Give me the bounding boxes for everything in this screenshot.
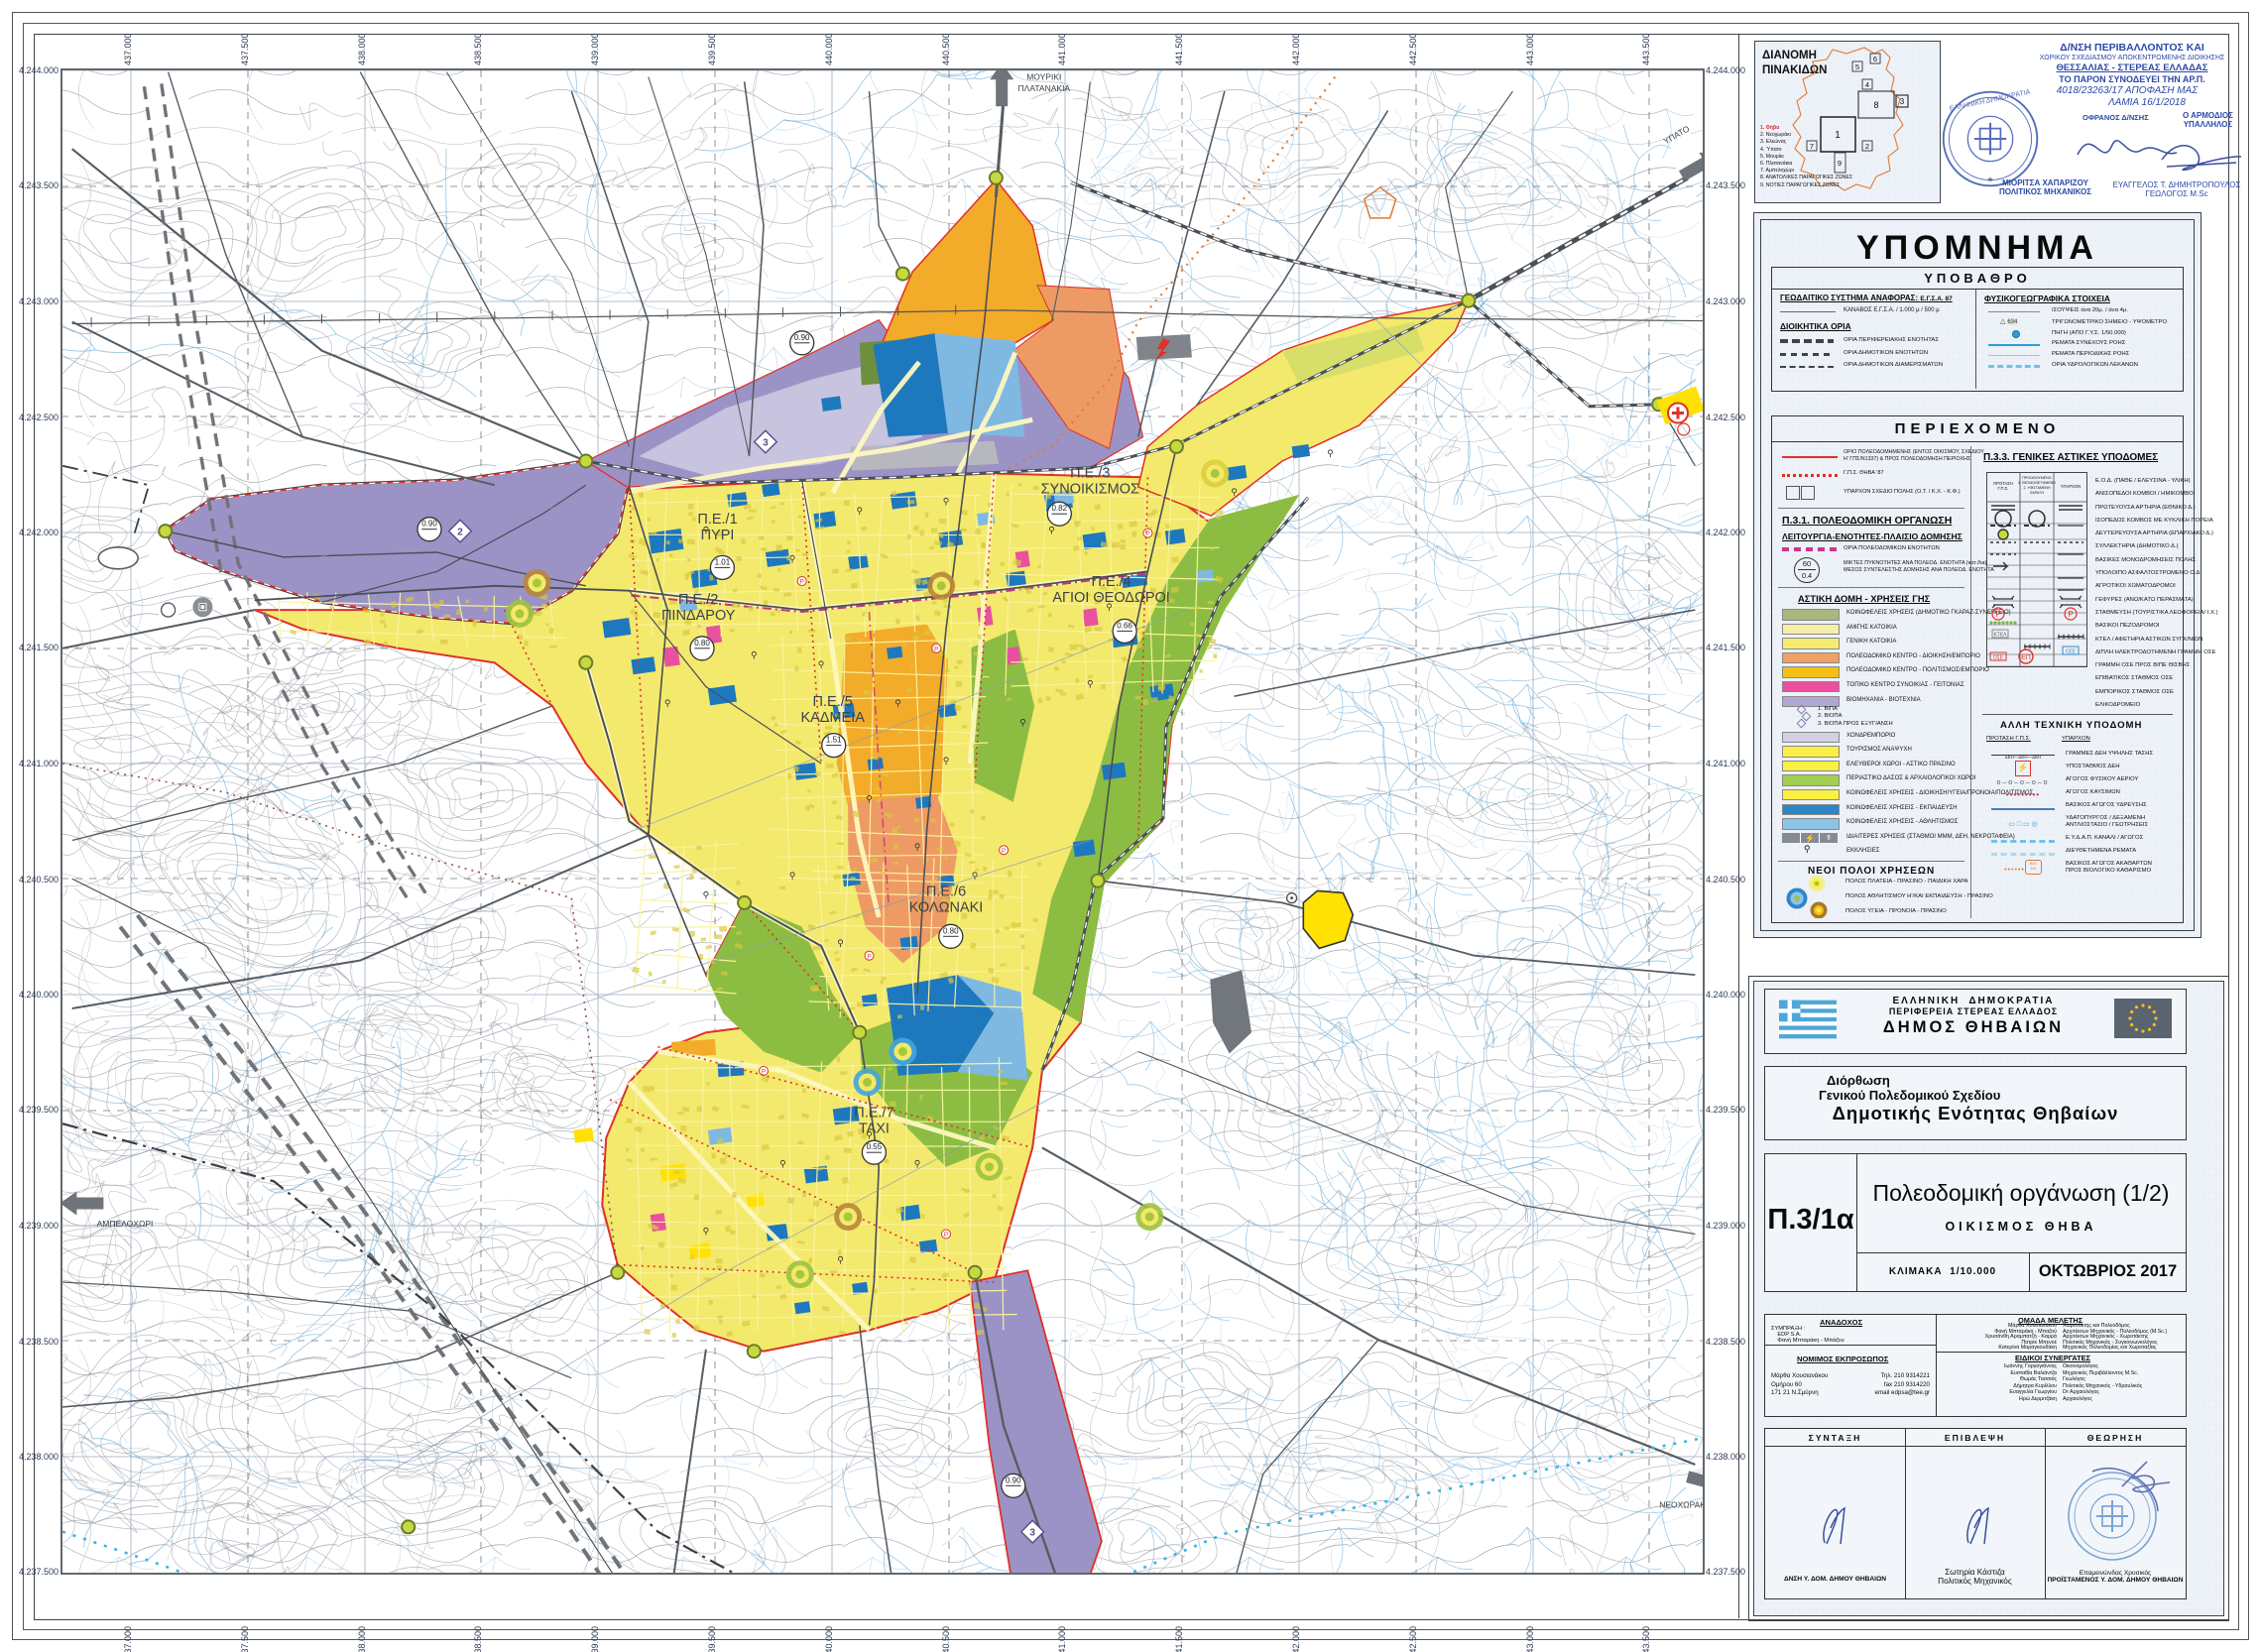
svg-text:⚲: ⚲ bbox=[894, 698, 901, 708]
svg-text:438.500: 438.500 bbox=[473, 1626, 483, 1652]
svg-text:4.237.500: 4.237.500 bbox=[19, 1567, 59, 1577]
svg-text:4.239.500: 4.239.500 bbox=[19, 1105, 59, 1115]
svg-text:⚲: ⚲ bbox=[914, 1159, 921, 1169]
svg-text:2. ΥΦΙΣΤΑΜΕΝΗ: 2. ΥΦΙΣΤΑΜΕΝΗ bbox=[2023, 486, 2051, 490]
svg-text:4.240.500: 4.240.500 bbox=[1706, 875, 1745, 885]
svg-text:ΑΓΙΟΙ ΘΕΟΔΩΡΟΙ: ΑΓΙΟΙ ΘΕΟΔΩΡΟΙ bbox=[1052, 590, 1169, 606]
svg-text:6: 6 bbox=[1873, 55, 1877, 63]
svg-text:1.51: 1.51 bbox=[826, 736, 842, 745]
svg-text:0.82: 0.82 bbox=[1052, 504, 1068, 513]
svg-text:443.500: 443.500 bbox=[1641, 1626, 1651, 1652]
svg-text:3: 3 bbox=[1900, 97, 1905, 106]
svg-text:P: P bbox=[2068, 610, 2073, 619]
svg-text:P: P bbox=[800, 579, 804, 586]
svg-text:⚲: ⚲ bbox=[751, 650, 758, 660]
svg-text:442.500: 442.500 bbox=[1408, 33, 1418, 65]
svg-text:Π.Ε./4: Π.Ε./4 bbox=[1091, 574, 1130, 590]
svg-text:4.239.000: 4.239.000 bbox=[19, 1221, 59, 1231]
svg-text:438.500: 438.500 bbox=[473, 33, 483, 65]
svg-text:4.238.000: 4.238.000 bbox=[1706, 1452, 1745, 1462]
svg-text:4.239.000: 4.239.000 bbox=[1706, 1221, 1745, 1231]
svg-text:⚲: ⚲ bbox=[943, 756, 950, 766]
svg-text:2: 2 bbox=[1865, 142, 1869, 151]
svg-text:1. ΘΕΣΜΟΘΕΤΗΜΕΝΟ: 1. ΘΕΣΜΟΘΕΤΗΜΕΝΟ bbox=[2018, 481, 2056, 485]
svg-text:4.244.000: 4.244.000 bbox=[1706, 65, 1745, 75]
svg-text:P: P bbox=[1995, 610, 2000, 619]
svg-text:439.000: 439.000 bbox=[590, 1626, 600, 1652]
svg-text:443.000: 443.000 bbox=[1525, 1626, 1535, 1652]
svg-text:4.238.500: 4.238.500 bbox=[19, 1337, 59, 1347]
svg-text:ΑΜΠΕΛΟΧΩΡΙ: ΑΜΠΕΛΟΧΩΡΙ bbox=[97, 1219, 154, 1229]
svg-text:3: 3 bbox=[763, 438, 769, 449]
svg-text:441.000: 441.000 bbox=[1057, 1626, 1067, 1652]
svg-text:ΕΠ: ΕΠ bbox=[2021, 654, 2031, 661]
svg-text:⚲: ⚲ bbox=[837, 1255, 844, 1265]
svg-text:4.242.500: 4.242.500 bbox=[1706, 413, 1745, 422]
svg-text:4.242.000: 4.242.000 bbox=[19, 528, 59, 537]
svg-text:Π.Ε./6: Π.Ε./6 bbox=[926, 885, 966, 900]
svg-text:ΝΕΟΧΩΡΑΚΙ: ΝΕΟΧΩΡΑΚΙ bbox=[1659, 1500, 1708, 1510]
svg-text:440.000: 440.000 bbox=[824, 33, 834, 65]
svg-text:437.000: 437.000 bbox=[123, 1626, 133, 1652]
svg-text:443.500: 443.500 bbox=[1641, 33, 1651, 65]
svg-text:437.500: 437.500 bbox=[240, 33, 250, 65]
svg-text:⚲: ⚲ bbox=[857, 506, 864, 516]
svg-text:0.80: 0.80 bbox=[943, 926, 959, 935]
svg-text:441.000: 441.000 bbox=[1057, 33, 1067, 65]
svg-text:4.240.000: 4.240.000 bbox=[1706, 990, 1745, 1000]
svg-text:442.000: 442.000 bbox=[1291, 1626, 1301, 1652]
svg-text:0.80: 0.80 bbox=[694, 639, 710, 648]
svg-text:0.90: 0.90 bbox=[421, 520, 437, 529]
svg-text:ΚΤΕΛ: ΚΤΕΛ bbox=[1993, 633, 2007, 639]
svg-text:⚲: ⚲ bbox=[914, 842, 921, 852]
svg-text:ΥΠΑΡΧΟΝ: ΥΠΑΡΧΟΝ bbox=[2061, 484, 2081, 489]
svg-text:438.000: 438.000 bbox=[357, 1626, 367, 1652]
svg-text:0.55: 0.55 bbox=[867, 1142, 883, 1151]
svg-text:⚲: ⚲ bbox=[818, 659, 825, 669]
svg-text:⚲: ⚲ bbox=[703, 890, 710, 900]
svg-text:P: P bbox=[944, 1232, 948, 1239]
svg-text:437.000: 437.000 bbox=[123, 33, 133, 65]
svg-text:4.243.500: 4.243.500 bbox=[1706, 180, 1745, 190]
svg-text:⚲: ⚲ bbox=[866, 794, 873, 804]
svg-text:ΧΑΡΑΞΗ: ΧΑΡΑΞΗ bbox=[2030, 491, 2045, 495]
svg-text:⚲: ⚲ bbox=[1231, 487, 1238, 497]
svg-text:443.000: 443.000 bbox=[1525, 33, 1535, 65]
svg-text:3: 3 bbox=[1029, 1528, 1035, 1539]
svg-text:0.90: 0.90 bbox=[1006, 1475, 1021, 1484]
svg-text:5: 5 bbox=[1855, 62, 1859, 71]
svg-text:4.238.000: 4.238.000 bbox=[19, 1452, 59, 1462]
svg-text:4.244.000: 4.244.000 bbox=[19, 65, 59, 75]
svg-text:⚲: ⚲ bbox=[1048, 526, 1055, 535]
svg-text:440.000: 440.000 bbox=[824, 1626, 834, 1652]
svg-text:P: P bbox=[934, 646, 938, 652]
svg-text:4.241.500: 4.241.500 bbox=[1706, 643, 1745, 652]
svg-text:439.500: 439.500 bbox=[707, 1626, 717, 1652]
svg-text:⚲: ⚲ bbox=[837, 938, 844, 948]
svg-text:⚲: ⚲ bbox=[1087, 679, 1094, 689]
svg-text:4.240.000: 4.240.000 bbox=[19, 990, 59, 1000]
svg-text:ΜΟΥΡΙΚΙ: ΜΟΥΡΙΚΙ bbox=[1026, 72, 1061, 82]
svg-text:439.000: 439.000 bbox=[590, 33, 600, 65]
svg-text:442.000: 442.000 bbox=[1291, 33, 1301, 65]
svg-text:1.01: 1.01 bbox=[715, 557, 731, 566]
svg-text:⚲: ⚲ bbox=[1327, 448, 1334, 458]
svg-text:⚲: ⚲ bbox=[664, 698, 671, 708]
svg-text:Γ.Π.Σ.: Γ.Π.Σ. bbox=[1998, 486, 2009, 491]
svg-text:4.237.500: 4.237.500 bbox=[1706, 1567, 1745, 1577]
svg-text:ΠΡΟΩΘΟΥΜΕΝΟ: ΠΡΟΩΘΟΥΜΕΝΟ bbox=[2022, 476, 2051, 480]
svg-text:4.241.500: 4.241.500 bbox=[19, 643, 59, 652]
svg-text:4: 4 bbox=[1865, 80, 1869, 89]
svg-text:ΣΥΝΟΙΚΙΣΜΟΣ: ΣΥΝΟΙΚΙΣΜΟΣ bbox=[1041, 481, 1139, 497]
svg-text:⚲: ⚲ bbox=[789, 554, 796, 564]
svg-text:0.66: 0.66 bbox=[1117, 621, 1132, 630]
svg-text:Π.Ε./2: Π.Ε./2 bbox=[678, 592, 718, 608]
svg-text:440.500: 440.500 bbox=[941, 1626, 951, 1652]
svg-text:ΠΥΡΙ: ΠΥΡΙ bbox=[701, 528, 735, 543]
svg-text:⚲: ⚲ bbox=[972, 871, 979, 881]
svg-text:ΠΙΝΔΑΡΟΥ: ΠΙΝΔΑΡΟΥ bbox=[661, 608, 736, 624]
svg-text:⚲: ⚲ bbox=[943, 497, 950, 507]
svg-text:8: 8 bbox=[1873, 100, 1878, 110]
svg-text:P: P bbox=[867, 953, 871, 960]
svg-text:442.500: 442.500 bbox=[1408, 1626, 1418, 1652]
svg-text:⚲: ⚲ bbox=[703, 1227, 710, 1237]
svg-text:4.243.500: 4.243.500 bbox=[19, 180, 59, 190]
svg-text:⚲: ⚲ bbox=[779, 1159, 786, 1169]
svg-text:ΚΟΛΩΝΑΚΙ: ΚΟΛΩΝΑΚΙ bbox=[909, 900, 984, 916]
svg-text:437.500: 437.500 bbox=[240, 1626, 250, 1652]
svg-text:4.238.500: 4.238.500 bbox=[1706, 1337, 1745, 1347]
svg-text:2: 2 bbox=[457, 528, 463, 538]
svg-text:Π.Ε./1: Π.Ε./1 bbox=[697, 512, 737, 528]
svg-text:4.240.500: 4.240.500 bbox=[19, 875, 59, 885]
svg-text:4.239.500: 4.239.500 bbox=[1706, 1105, 1745, 1115]
svg-text:P: P bbox=[1002, 848, 1006, 855]
svg-text:4.243.000: 4.243.000 bbox=[1706, 296, 1745, 306]
svg-text:441.500: 441.500 bbox=[1174, 33, 1184, 65]
svg-text:438.000: 438.000 bbox=[357, 33, 367, 65]
svg-text:Π.Ε./3: Π.Ε./3 bbox=[1070, 465, 1110, 481]
svg-text:ΟΣΕ: ΟΣΕ bbox=[2066, 649, 2077, 655]
svg-text:ΚΑΔΜΕΙΑ: ΚΑΔΜΕΙΑ bbox=[800, 710, 865, 726]
svg-text:0.90: 0.90 bbox=[794, 333, 810, 342]
svg-text:4.242.500: 4.242.500 bbox=[19, 413, 59, 422]
svg-text:439.500: 439.500 bbox=[707, 33, 717, 65]
svg-text:4.242.000: 4.242.000 bbox=[1706, 528, 1745, 537]
svg-text:ΤΑΧΙ: ΤΑΧΙ bbox=[859, 1121, 890, 1136]
svg-text:Π.Ε./5: Π.Ε./5 bbox=[813, 694, 853, 710]
svg-text:ΟΣΕ: ΟΣΕ bbox=[1993, 655, 2004, 661]
svg-text:Π.Ε./7: Π.Ε./7 bbox=[854, 1105, 893, 1121]
svg-text:4.241.000: 4.241.000 bbox=[1706, 759, 1745, 768]
svg-text:440.500: 440.500 bbox=[941, 33, 951, 65]
svg-text:⚲: ⚲ bbox=[789, 871, 796, 881]
svg-text:4.243.000: 4.243.000 bbox=[19, 296, 59, 306]
svg-text:⚲: ⚲ bbox=[1019, 717, 1026, 727]
svg-text:ΠΛΑΤΑΝΑΚΙΑ: ΠΛΑΤΑΝΑΚΙΑ bbox=[1018, 83, 1071, 93]
svg-text:441.500: 441.500 bbox=[1174, 1626, 1184, 1652]
svg-text:4.241.000: 4.241.000 bbox=[19, 759, 59, 768]
